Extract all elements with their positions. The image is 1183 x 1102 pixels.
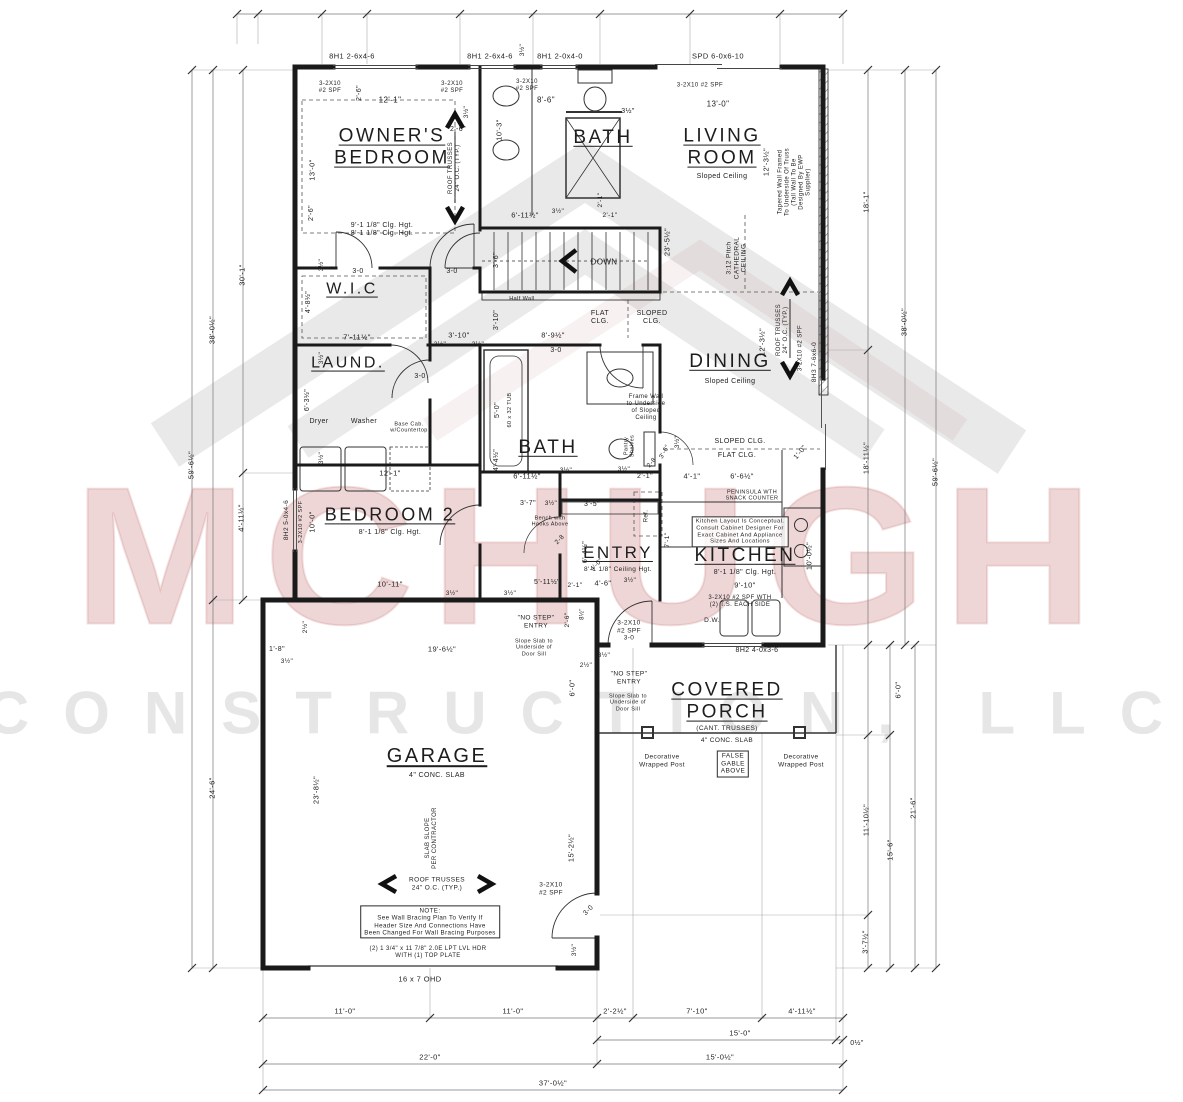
dimension-annotation: 3½" xyxy=(598,652,611,660)
dimension-annotation: 3½" xyxy=(545,500,558,508)
dimension-annotation: ROOF TRUSSES 24" O.C. (TYP.) xyxy=(409,876,465,891)
dimension-annotation: 9'-10" xyxy=(734,582,756,591)
dimension-annotation: 3-0 xyxy=(446,268,457,276)
dimension-annotation: 0½" xyxy=(850,1040,863,1048)
dimension-annotation: 11'-0" xyxy=(503,1008,524,1017)
dimension-annotation: D.W. xyxy=(704,617,720,625)
dimension-annotation: Kitchen Layout Is Conceptual. Consult Ca… xyxy=(692,516,789,547)
dimension-annotation: 3-2X10 #2 SPF xyxy=(319,81,341,95)
dimension-annotation: 15'-0" xyxy=(729,1030,751,1039)
dimension-annotation: 8'-1 1/8" Clg. Hgt. xyxy=(359,529,421,537)
dimension-annotation: 4'-1" xyxy=(684,473,701,482)
dimension-annotation: 2-8 xyxy=(646,456,659,469)
dimension-annotation: 8H1 2-0x4-0 xyxy=(537,53,583,62)
dimension-annotation: 13'-0" xyxy=(309,159,318,181)
dimension-annotation: FLAT CLG. xyxy=(591,310,609,327)
dimension-annotation: 7'-1" xyxy=(664,533,672,548)
dimension-annotation: 10'-0½" xyxy=(806,542,815,570)
dimension-annotation: 8'-1 1/8" Clg. Hgt. xyxy=(714,569,776,577)
dimension-annotation: 6'-6½" xyxy=(730,473,754,482)
dimension-annotation: 3½" xyxy=(621,108,634,116)
dimension-annotation: 3½" xyxy=(472,341,485,349)
room-label-wic: W.I.C xyxy=(326,281,378,300)
annotation-layer: 8H1 2-6x4-68H1 2-6x4-68H1 2-0x4-0SPD 6-0… xyxy=(0,0,1183,1102)
dimension-annotation: 3:12 Pitch CATHEDRAL CEILING xyxy=(726,237,749,280)
dimension-annotation: 2½" xyxy=(580,662,593,670)
dimension-annotation: Slope Slab to Underside of Door Sill xyxy=(515,638,553,657)
dimension-annotation: SLAB SLOPE PER CONTRACTOR xyxy=(425,807,439,869)
dimension-annotation: FLAT CLG. xyxy=(718,452,756,460)
dimension-annotation: 8H3 7-6x6-0 xyxy=(811,342,819,382)
dimension-annotation: 6'-11½" xyxy=(513,473,541,482)
dimension-annotation: 6'-0" xyxy=(569,680,578,697)
dimension-annotation: 6'-4½" xyxy=(582,541,590,563)
dimension-annotation: 16 x 7 OHD xyxy=(398,976,441,985)
dimension-annotation: 4'-4½" xyxy=(493,449,501,471)
room-label-bedroom-2: BEDROOM 2 xyxy=(325,504,456,525)
dimension-annotation: 3½" xyxy=(446,590,459,598)
dimension-annotation: 6'-0" xyxy=(895,682,904,699)
dimension-annotation: 2'-1" xyxy=(597,193,605,208)
dimension-annotation: 11'-0" xyxy=(335,1008,356,1017)
dimension-annotation: PENINSULA WTH SNACK COUNTER xyxy=(726,490,779,503)
dimension-annotation: 23'-8½" xyxy=(313,776,322,804)
dimension-annotation: 8H1 2-6x4-6 xyxy=(329,53,375,62)
dimension-annotation: Pantry Shelves xyxy=(624,435,637,457)
dimension-annotation: Decorative Wrapped Post xyxy=(639,753,685,768)
dimension-annotation: 3'-7" xyxy=(520,500,536,508)
dimension-annotation: 3½" xyxy=(624,577,637,585)
dimension-annotation: 3½" xyxy=(281,658,294,666)
dimension-annotation: 3-0 xyxy=(414,373,425,381)
dimension-annotation: 12'-1" xyxy=(379,470,401,479)
dimension-annotation: 3-0 xyxy=(582,904,596,918)
dimension-annotation: 59'-6½" xyxy=(932,458,941,486)
dimension-annotation: Bench with Hooks Above xyxy=(532,516,569,529)
dimension-annotation: 3½" xyxy=(463,106,471,119)
dimension-annotation: 8½" xyxy=(579,608,586,620)
dimension-annotation: 12'-1" xyxy=(379,95,402,104)
dimension-annotation: 1'-8" xyxy=(269,646,285,654)
dimension-annotation: 3'-6" xyxy=(658,444,672,461)
dimension-annotation: 3-2X10 #2 SPF xyxy=(797,325,804,371)
dimension-annotation: 2½" xyxy=(302,621,310,634)
dimension-annotation: Sloped Ceiling xyxy=(705,378,756,386)
dimension-annotation: 12'-3½" xyxy=(759,328,768,356)
dimension-annotation: 8H2 5-0x4-6 xyxy=(283,500,291,540)
dimension-annotation: 9'-1 1/8" Clg. Hgt. 8'-1 1/8" Clg. Hgt. xyxy=(351,222,413,239)
dimension-annotation: 3½" xyxy=(318,352,326,365)
dimension-annotation: 2'-6" xyxy=(564,613,572,628)
dimension-annotation: 3½" xyxy=(560,467,573,475)
dimension-annotation: 8'-9½" xyxy=(541,332,565,341)
dimension-annotation: 3½" xyxy=(618,466,631,474)
dimension-annotation: 13'-0" xyxy=(707,99,730,108)
room-label-entry: ENTRY xyxy=(583,543,653,563)
dimension-annotation: 24'-6" xyxy=(209,777,218,799)
dimension-annotation: ROOF TRUSSES 24" O.C. (TYP.) xyxy=(448,142,462,194)
dimension-annotation: 15'-0½" xyxy=(706,1054,734,1063)
dimension-annotation: 10'-11" xyxy=(377,581,403,590)
dimension-annotation: 18'-1" xyxy=(863,191,872,213)
dimension-annotation: 4'-8½" xyxy=(305,291,313,313)
dimension-annotation: (CANT. TRUSSES) xyxy=(696,725,758,733)
dimension-annotation: Dryer xyxy=(309,418,328,426)
dimension-annotation: 4'-11½" xyxy=(238,504,247,532)
dimension-annotation: 3½" xyxy=(318,452,326,465)
dimension-annotation: 60 x 32 TUB xyxy=(507,393,513,428)
dimension-annotation: 3½" xyxy=(552,208,565,216)
dimension-annotation: 38'-0½" xyxy=(209,316,218,344)
dimension-annotation: 3-2X10 #2 SPF xyxy=(539,881,563,896)
dimension-annotation: 3'-7½" xyxy=(862,930,871,954)
dimension-annotation: SLOPED CLG. xyxy=(714,438,765,446)
dimension-annotation: 5'-0" xyxy=(494,402,502,418)
dimension-annotation: 4" CONC. SLAB xyxy=(701,737,753,745)
dimension-annotation: 21'-6" xyxy=(910,797,919,819)
dimension-annotation: 3'-5" xyxy=(584,501,600,509)
dimension-annotation: FALSE GABLE ABOVE xyxy=(717,751,749,778)
dimension-annotation: 6'-3½" xyxy=(304,389,312,411)
dimension-annotation: 3-2X10 #2 SPF xyxy=(298,501,304,544)
dimension-annotation: 2'-2½" xyxy=(603,1008,627,1017)
dimension-annotation: 15'-2½" xyxy=(568,834,577,862)
dimension-annotation: 7'-10" xyxy=(686,1008,708,1017)
room-label-covered-porch: COVERED PORCH xyxy=(671,680,782,725)
room-label-bath-1: BATH xyxy=(573,127,632,149)
dimension-annotation: 3-0 xyxy=(550,347,561,355)
stairs-down-label: DOWN xyxy=(591,257,618,266)
dimension-annotation: 2'-1" xyxy=(568,582,583,590)
dimension-annotation: 3-2X10 #2 SPF WTH (2) T.S. EACH SIDE xyxy=(708,595,771,609)
dimension-annotation: 2'-6" xyxy=(450,126,466,134)
dimension-annotation: 10'-0" xyxy=(309,511,318,533)
room-label-garage: GARAGE xyxy=(387,745,488,769)
dimension-annotation: SLOPED CLG. xyxy=(637,310,668,327)
dimension-annotation: 1'-0" xyxy=(793,444,810,462)
dimension-annotation: 3-2X10 #2 SPF xyxy=(516,79,538,93)
dimension-annotation: 5'-11½" xyxy=(534,579,560,587)
dimension-annotation: 59'-6½" xyxy=(188,451,197,479)
dimension-annotation: 8H1 2-6x4-6 xyxy=(467,53,513,62)
dimension-annotation: 3-2X10 #2 SPF 3-0 xyxy=(617,620,641,643)
dimension-annotation: 2'-6" xyxy=(356,85,364,101)
dimension-annotation: 3-2X10 #2 SPF xyxy=(677,82,723,89)
dimension-annotation: 3-0 xyxy=(352,268,363,276)
dimension-annotation: 37'-0½" xyxy=(539,1080,567,1089)
dimension-annotation: 4" CONC. SLAB xyxy=(409,772,465,780)
dimension-annotation: 3'-10" xyxy=(448,332,470,341)
dimension-annotation: 4'-11½" xyxy=(788,1008,816,1017)
room-label-owners-bedroom: OWNER'S BEDROOM xyxy=(334,126,450,171)
dimension-annotation: 2'-1" xyxy=(637,473,653,481)
dimension-annotation: 11'-10½" xyxy=(863,804,872,836)
dimension-annotation: 3-2X10 #2 SPF xyxy=(441,81,463,95)
dimension-annotation: 8H2 4-0x3-6 xyxy=(736,647,779,655)
floor-plan-sheet: MCHUGH CONSTRUCTION, LLC xyxy=(0,0,1183,1102)
room-label-living-room: LIVING ROOM xyxy=(683,126,760,171)
dimension-annotation: Frame Wall to Underside of Sloped Ceilin… xyxy=(627,394,666,422)
room-label-kitchen: KITCHEN xyxy=(695,545,796,567)
dimension-annotation: 3'-6" xyxy=(493,252,501,268)
dimension-annotation: 18'-11½" xyxy=(863,442,872,474)
dimension-annotation: 19'-6½" xyxy=(428,646,456,655)
dimension-annotation: Decorative Wrapped Post xyxy=(778,753,824,768)
dimension-annotation: 22'-0" xyxy=(419,1054,441,1063)
dimension-annotation: 12'-3½" xyxy=(763,148,772,176)
dimension-annotation: ROOF TRUSSES 24" O.C. (TYP.) xyxy=(776,304,790,356)
dimension-annotation: Base Cab. w/Countertop xyxy=(390,422,428,435)
dimension-annotation: 4'-6" xyxy=(595,580,612,589)
dimension-annotation: 2-8 xyxy=(554,534,567,547)
dimension-annotation: 3½" xyxy=(674,436,682,449)
dimension-annotation: 3½" xyxy=(434,341,447,349)
dimension-annotation: Washer xyxy=(351,418,377,426)
dimension-annotation: SPD 6-0x6-10 xyxy=(692,53,744,62)
dimension-annotation: Ref. xyxy=(643,510,650,523)
dimension-annotation: 30'-1" xyxy=(239,264,248,286)
dimension-annotation: 3½" xyxy=(519,44,527,57)
dimension-annotation: 3'-10" xyxy=(493,310,501,330)
dimension-annotation: 3½" xyxy=(318,259,326,272)
dimension-annotation: Tapered Wall Framed To Underside Of Trus… xyxy=(777,148,812,216)
dimension-annotation: 6'-11½" xyxy=(511,212,539,221)
dimension-annotation: 23'-5½" xyxy=(664,228,673,256)
dimension-annotation: 38'-0½" xyxy=(901,308,910,336)
dimension-annotation: 2'-6" xyxy=(308,205,316,221)
dimension-annotation: NOTE: See Wall Bracing Plan To Verify If… xyxy=(360,905,500,938)
dimension-annotation: 3½" xyxy=(571,944,579,957)
room-label-bath-2: BATH xyxy=(518,437,577,459)
dimension-annotation: Sloped Ceiling xyxy=(697,173,748,181)
dimension-annotation: 3½" xyxy=(504,590,517,598)
dimension-annotation: Half Wall xyxy=(509,296,534,302)
dimension-annotation: 10'-3" xyxy=(496,119,505,141)
dimension-annotation: Slope Slab to Underside of Door Sill xyxy=(609,693,647,712)
dimension-annotation: 7'-11½" xyxy=(343,334,371,343)
dimension-annotation: 2'-1" xyxy=(603,212,618,220)
dimension-annotation: 8'-6" xyxy=(537,95,555,104)
dimension-annotation: "NO STEP" ENTRY xyxy=(611,670,648,685)
dimension-annotation: (2) 1 3/4" x 11 7/8" 2.0E LPT LVL HDR WI… xyxy=(370,946,487,960)
dimension-annotation: "NO STEP" ENTRY xyxy=(518,614,555,629)
dimension-annotation: 15'-6" xyxy=(887,839,896,861)
